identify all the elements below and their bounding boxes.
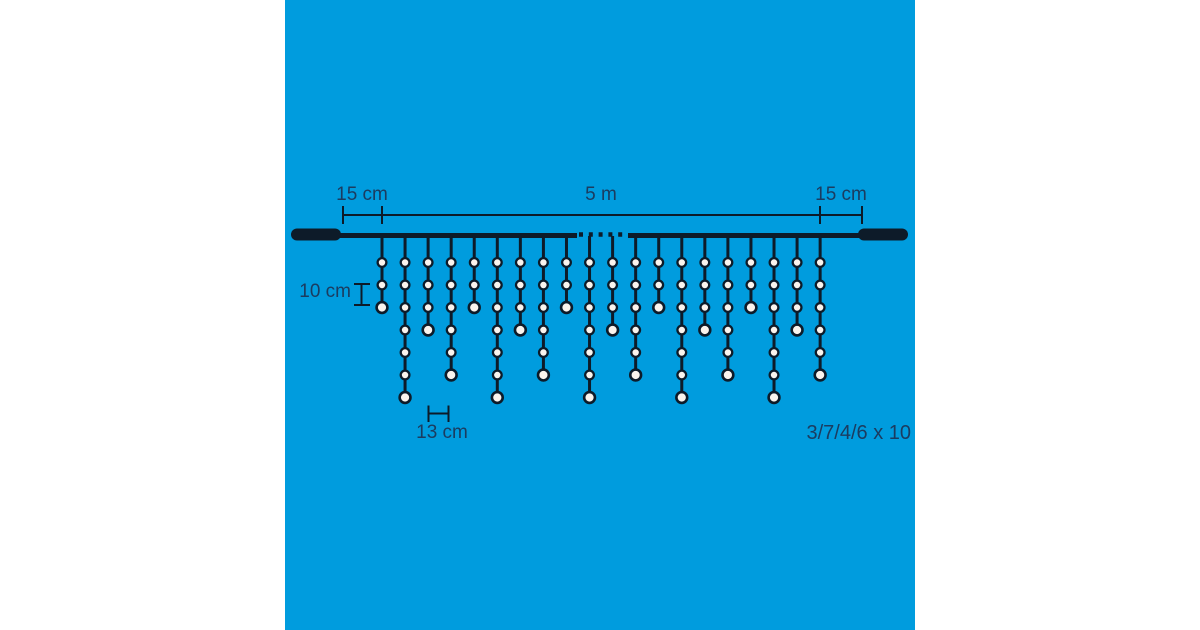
light-drop [698, 236, 711, 337]
bulb-glass [448, 304, 454, 310]
bulb-glass [402, 304, 408, 310]
bulb-glass [425, 282, 431, 288]
bulb-glass [817, 259, 823, 265]
bulb-glass [817, 282, 823, 288]
bulb-glass [425, 304, 431, 310]
bulb-glass [725, 282, 731, 288]
bulb-glass [540, 259, 546, 265]
bulb-glass [794, 259, 800, 265]
light-drop [375, 236, 388, 314]
bulb-glass [470, 303, 478, 311]
bulb-glass [655, 303, 663, 311]
bulb-glass [679, 304, 685, 310]
bulb-glass [401, 393, 409, 401]
bulb-glass [679, 327, 685, 333]
bulb-glass [725, 327, 731, 333]
bulb-glass [725, 349, 731, 355]
bulb-glass [540, 304, 546, 310]
bulb-glass [539, 371, 547, 379]
bulb-glass [771, 282, 777, 288]
light-drop [468, 236, 481, 314]
dimension-label-drop-spacing: 13 cm [402, 423, 482, 442]
light-drop [790, 236, 803, 337]
bulb-glass [494, 304, 500, 310]
bulb-glass [748, 282, 754, 288]
bulb-glass [586, 259, 592, 265]
bulb-glass [402, 349, 408, 355]
bulb-glass [378, 303, 386, 311]
light-drop [767, 236, 780, 404]
bulb-glass [632, 371, 640, 379]
light-drop [652, 236, 665, 314]
drop-pattern-label: 3/7/4/6 x 10 [730, 423, 911, 444]
bulb-glass [471, 259, 477, 265]
light-drop [721, 236, 734, 382]
bulb-glass [425, 259, 431, 265]
light-drop [675, 236, 688, 404]
bulb-glass [447, 371, 455, 379]
light-drop [398, 236, 411, 404]
bulb-glass [609, 326, 617, 334]
bulb-glass [794, 304, 800, 310]
dimension-label-lead-left: 15 cm [322, 185, 402, 204]
bulb-glass [817, 304, 823, 310]
bulb-glass [586, 282, 592, 288]
bulb-glass [585, 393, 593, 401]
bulb-glass [540, 282, 546, 288]
bulb-glass [586, 372, 592, 378]
bulb-glass [771, 304, 777, 310]
bulb-glass [471, 282, 477, 288]
bulb-glass [725, 259, 731, 265]
product-diagram-image: 15 cm 5 m 15 cm 10 cm 13 cm 3/7/4/6 x 10 [285, 0, 915, 630]
bulb-glass [794, 282, 800, 288]
bulb-glass [679, 259, 685, 265]
bulb-glass [817, 349, 823, 355]
bulb-glass [540, 349, 546, 355]
light-drop [813, 236, 826, 382]
bulb-glass [702, 304, 708, 310]
bulb-glass [678, 393, 686, 401]
bulb-glass [494, 372, 500, 378]
bulb-glass [517, 259, 523, 265]
bulb-glass [402, 259, 408, 265]
light-drop [583, 236, 596, 404]
light-drop [444, 236, 457, 382]
page-background: 15 cm 5 m 15 cm 10 cm 13 cm 3/7/4/6 x 10 [0, 0, 1200, 630]
bulb-glass [586, 349, 592, 355]
bulb-glass [563, 259, 569, 265]
light-drop [629, 236, 642, 382]
bulb-glass [702, 282, 708, 288]
bulb-glass [632, 259, 638, 265]
bulb-glass [494, 349, 500, 355]
bulb-glass [793, 326, 801, 334]
bulb-glass [748, 259, 754, 265]
dimension-line [343, 206, 863, 224]
bulb-glass [747, 303, 755, 311]
bulb-glass [609, 259, 615, 265]
bulb-glass [609, 304, 615, 310]
right-power-cord [858, 229, 908, 241]
bulb-glass [402, 282, 408, 288]
bulb-glass [540, 327, 546, 333]
dimension-label-total-span: 5 m [561, 185, 641, 204]
main-wire [339, 235, 861, 236]
bulb-glass [816, 371, 824, 379]
bulb-glass [516, 326, 524, 334]
bulb-glass [517, 304, 523, 310]
bulb-glass [702, 259, 708, 265]
light-drop [421, 236, 434, 337]
bulb-glass [656, 259, 662, 265]
light-drops-layer [375, 236, 827, 404]
bulb-glass [771, 259, 777, 265]
bulb-glass [517, 282, 523, 288]
bulb-glass [562, 303, 570, 311]
bulb-glass [609, 282, 615, 288]
bulb-glass [424, 326, 432, 334]
bulb-glass [494, 259, 500, 265]
bulb-spacing-marker [354, 284, 370, 305]
bulb-glass [402, 327, 408, 333]
bulb-glass [563, 282, 569, 288]
bulb-glass [679, 349, 685, 355]
bulb-glass [656, 282, 662, 288]
bulb-glass [632, 304, 638, 310]
dimension-label-lead-right: 15 cm [801, 185, 881, 204]
bulb-glass [632, 327, 638, 333]
bulb-glass [725, 304, 731, 310]
bulb-glass [448, 327, 454, 333]
drop-spacing-marker [429, 406, 449, 423]
bulb-glass [448, 259, 454, 265]
icicle-lights-diagram [285, 0, 915, 630]
bulb-glass [632, 282, 638, 288]
bulb-glass [402, 372, 408, 378]
bulb-glass [724, 371, 732, 379]
left-power-cord [291, 229, 341, 241]
light-drop [514, 236, 527, 337]
bulb-glass [771, 372, 777, 378]
bulb-glass [448, 349, 454, 355]
light-drop [606, 236, 619, 337]
bulb-glass [679, 282, 685, 288]
bulb-glass [771, 327, 777, 333]
bulb-glass [494, 327, 500, 333]
bulb-glass [493, 393, 501, 401]
dimension-label-bulb-spacing: 10 cm [285, 282, 351, 301]
bulb-glass [817, 327, 823, 333]
light-drop [537, 236, 550, 382]
bulb-glass [494, 282, 500, 288]
bulb-glass [771, 349, 777, 355]
bulb-glass [448, 282, 454, 288]
bulb-glass [770, 393, 778, 401]
bulb-glass [701, 326, 709, 334]
bulb-glass [379, 259, 385, 265]
bulb-glass [379, 282, 385, 288]
light-drop [491, 236, 504, 404]
bulb-glass [586, 304, 592, 310]
light-drop [744, 236, 757, 314]
bulb-glass [632, 349, 638, 355]
bulb-glass [586, 327, 592, 333]
bulb-glass [679, 372, 685, 378]
light-drop [560, 236, 573, 314]
